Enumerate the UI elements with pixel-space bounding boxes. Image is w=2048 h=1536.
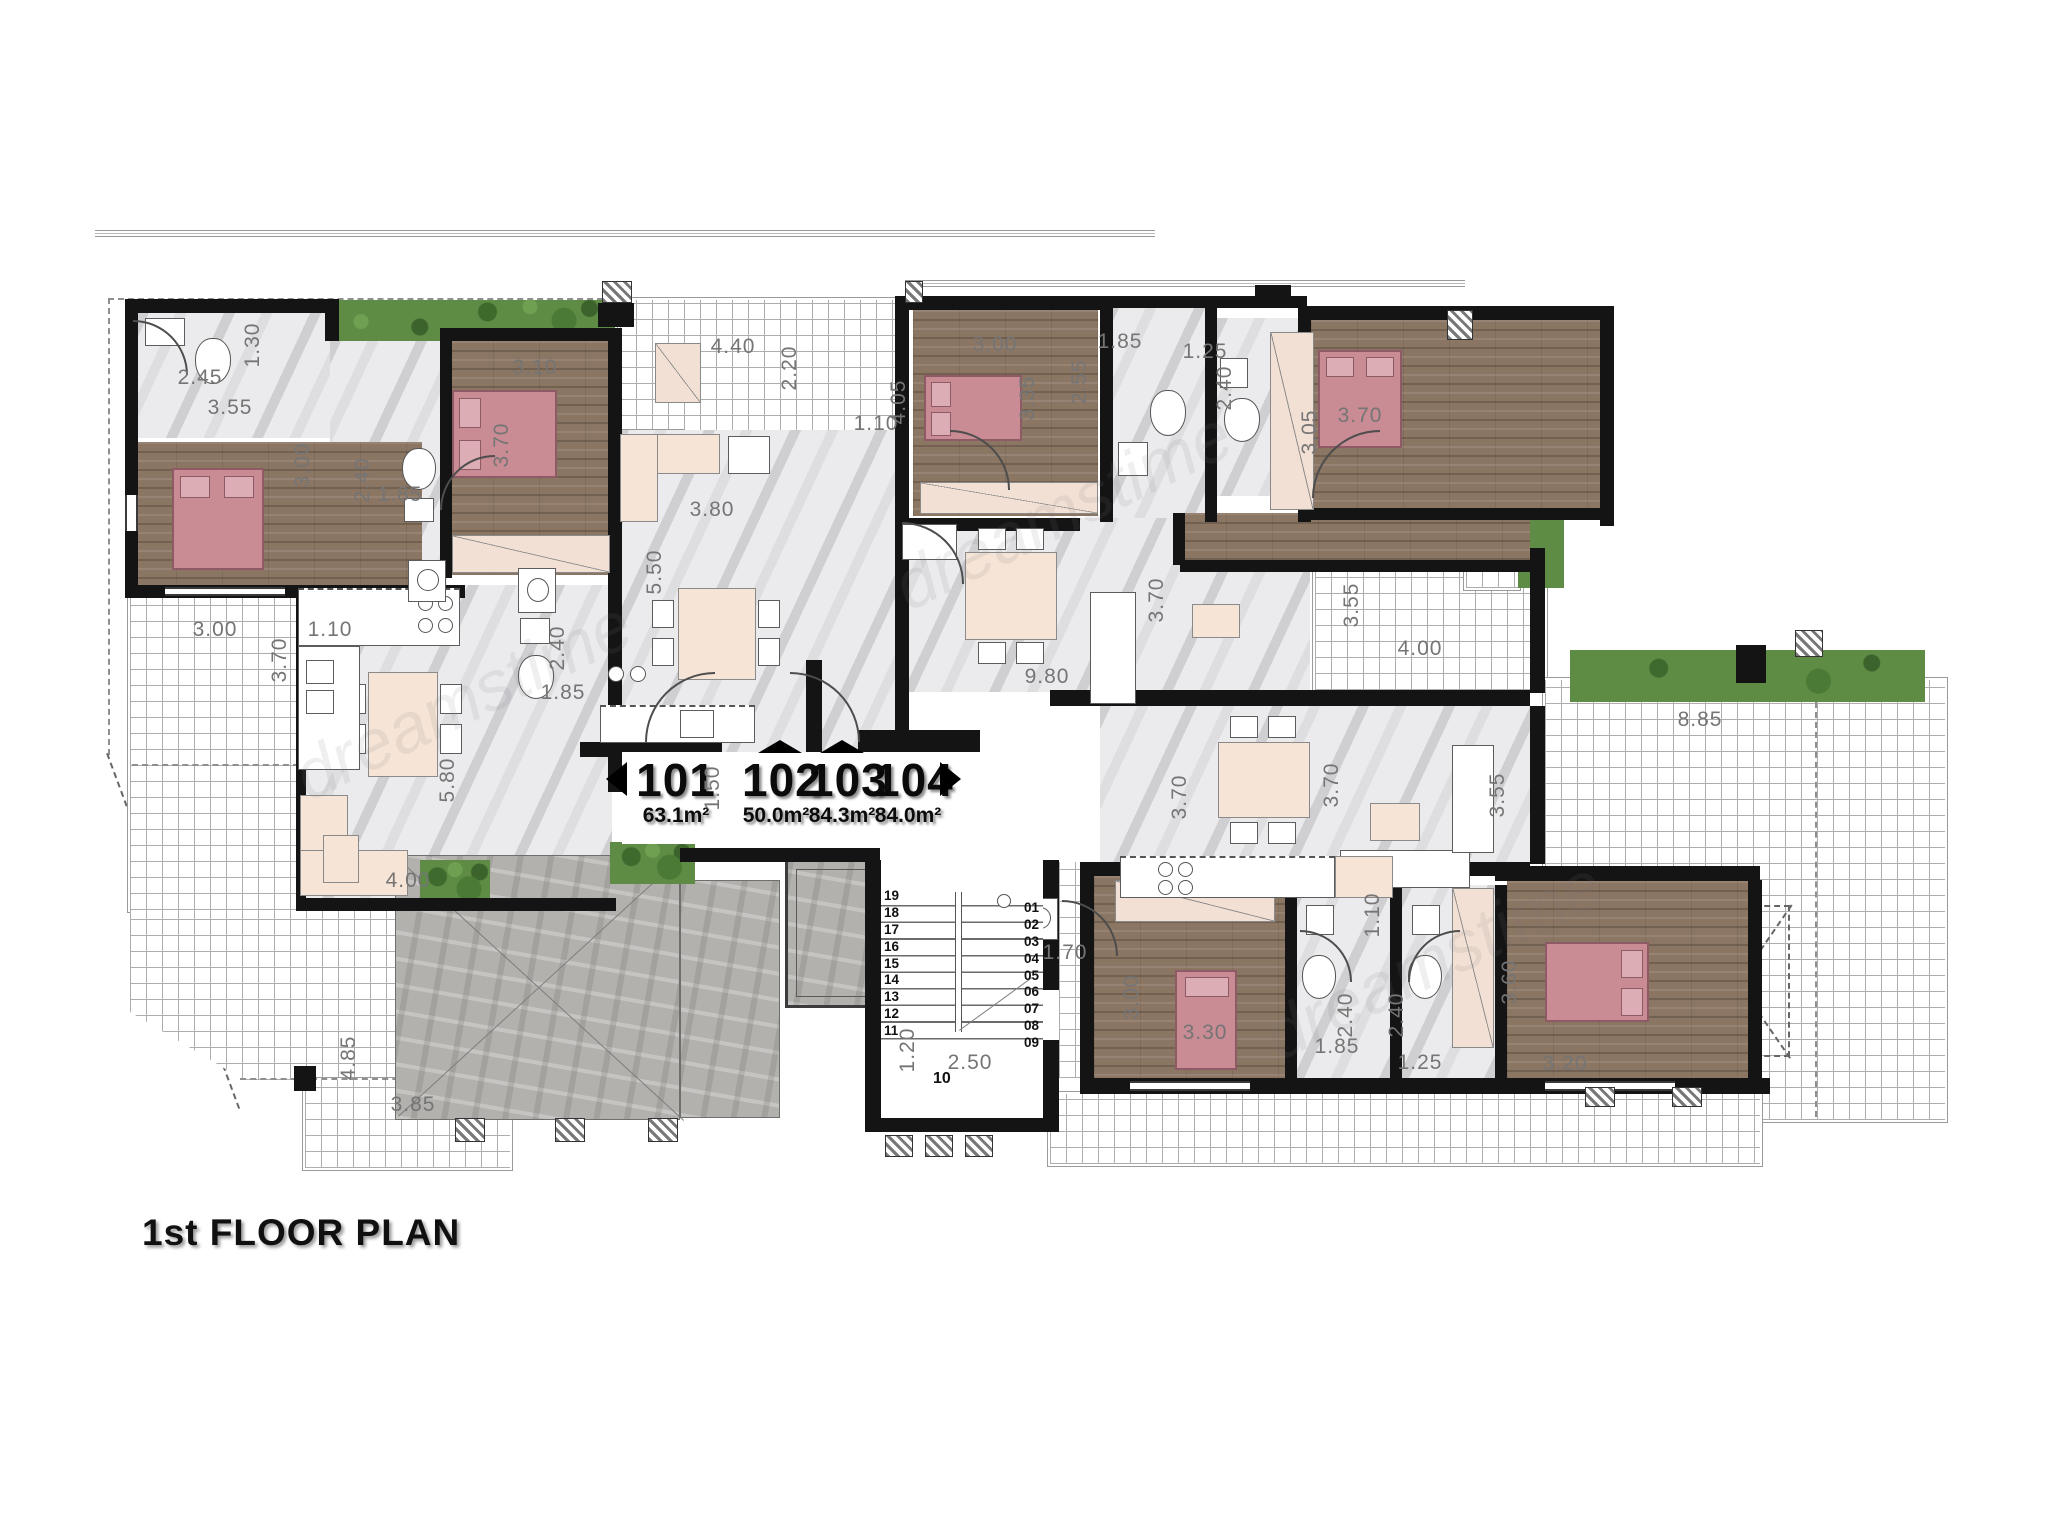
- toilet: [1150, 390, 1186, 436]
- chair: [978, 528, 1006, 550]
- wall: [1180, 560, 1538, 572]
- stair-step-number: 05: [1009, 968, 1039, 983]
- dimension-label: 3.20: [1543, 1052, 1588, 1076]
- roof-edge-lines-top: [95, 230, 1155, 237]
- dimension-label: 1.10: [1361, 893, 1385, 938]
- wall: [296, 898, 616, 911]
- dimension-label: 3.70: [1168, 775, 1192, 820]
- dimension-label: 1.20: [896, 1028, 920, 1073]
- column-hatched: [1672, 1087, 1702, 1107]
- chair: [440, 684, 462, 714]
- chair: [1016, 528, 1044, 550]
- dimension-label: 1.85: [541, 681, 586, 705]
- dimension-label: 2.50: [948, 1051, 993, 1075]
- stove-burner: [1178, 862, 1193, 877]
- wall: [1495, 866, 1760, 881]
- armchair-apt102: [728, 436, 770, 474]
- wall: [865, 1118, 1059, 1132]
- unit-label-103: 103 84.3m²: [808, 757, 876, 826]
- wall: [325, 299, 339, 341]
- chair: [1230, 716, 1258, 738]
- dimension-label: 5.80: [436, 758, 460, 803]
- stair-step-number: 02: [1009, 917, 1039, 932]
- dimension-label: 3.70: [268, 638, 292, 683]
- dining-table-apt104: [1218, 742, 1310, 818]
- wall: [598, 303, 634, 327]
- dimension-label: 1.25: [1183, 340, 1228, 364]
- column-hatched: [905, 281, 923, 303]
- wall: [1285, 885, 1297, 1078]
- sofa-apt102-corner: [620, 434, 658, 522]
- dimension-label: 3.70: [1338, 404, 1383, 428]
- entry-arrow-left-icon: [606, 762, 627, 796]
- dimension-label: 4.40: [711, 335, 756, 359]
- dimension-label: 2.45: [178, 366, 223, 390]
- dimension-label: 4.00: [1398, 637, 1443, 661]
- hallway-apt104: [1180, 513, 1530, 563]
- washing-machine: [518, 568, 556, 613]
- stair-step-number: 19: [884, 888, 912, 903]
- dimension-label: 4.85: [337, 1036, 361, 1081]
- chair: [652, 600, 674, 628]
- wall: [1748, 880, 1762, 1080]
- roof-edge-lines-top-right: [905, 280, 1465, 287]
- chair: [652, 638, 674, 666]
- dimension-label: 2.40: [1213, 366, 1237, 411]
- stair-step-number: 17: [884, 922, 912, 937]
- property-line-left: [108, 298, 110, 755]
- wall: [125, 299, 337, 313]
- entry-arrow-up-icon: [758, 740, 802, 753]
- stove-burner: [438, 618, 453, 633]
- terrace-dashed-line: [1815, 702, 1817, 1117]
- wall: [895, 296, 1107, 310]
- unit-area: 84.3m²: [808, 805, 876, 826]
- dimension-label: 4.00: [386, 869, 431, 893]
- unit-label-102: 102 50.0m²: [742, 757, 810, 826]
- column-hatched: [1447, 310, 1473, 340]
- wall: [1600, 306, 1614, 526]
- stair-step-number: 16: [884, 939, 912, 954]
- chair: [758, 600, 780, 628]
- wall: [1530, 548, 1545, 693]
- dimension-label: 3.70: [490, 423, 514, 468]
- stair-rail: [955, 892, 962, 1032]
- stair-step-number: 07: [1009, 1001, 1039, 1016]
- dimension-label: 3.00: [1120, 975, 1144, 1020]
- dimension-label: 3.30: [1183, 1021, 1228, 1045]
- coffee-table-apt104: [1370, 803, 1420, 841]
- dimension-label: 2.40: [1385, 993, 1409, 1038]
- bathroom-sink: [1412, 905, 1440, 935]
- column-hatched: [648, 1118, 678, 1142]
- stove-burner: [630, 666, 646, 682]
- dimension-label: 3.55: [1486, 773, 1510, 818]
- stair-step-number: 08: [1009, 1018, 1039, 1033]
- coffee-table-apt101: [323, 835, 359, 883]
- kitchen-sink: [306, 660, 334, 684]
- wall: [680, 848, 880, 862]
- dimension-label: 3.85: [391, 1093, 436, 1117]
- entry-arrow-up-icon: [820, 740, 864, 753]
- wall: [1043, 1040, 1059, 1120]
- dining-table-apt102: [678, 588, 756, 680]
- bed-apt104-bottom: [1545, 942, 1649, 1022]
- stair-step-number: 18: [884, 905, 912, 920]
- wall: [1736, 645, 1766, 683]
- window: [165, 587, 285, 596]
- dimension-label: 1.30: [241, 323, 265, 368]
- wall: [440, 328, 452, 578]
- entrance-walkway: [680, 880, 780, 1118]
- staircase: 191817161514131211 010203040506070809 10: [881, 862, 1043, 1118]
- wall: [1311, 508, 1601, 520]
- column-hatched: [965, 1135, 993, 1157]
- chair: [1268, 822, 1296, 844]
- chair: [1230, 822, 1258, 844]
- column-hatched: [555, 1118, 585, 1142]
- dimension-label: 5.50: [643, 550, 667, 595]
- washing-machine: [408, 560, 446, 602]
- bed-apt102: [924, 375, 1022, 441]
- dimension-label: 1.70: [1043, 941, 1088, 965]
- wall: [294, 1066, 316, 1091]
- dimension-label: 9.80: [1025, 665, 1070, 689]
- dining-table-apt101: [368, 672, 438, 777]
- dimension-label: 3.55: [1340, 583, 1364, 628]
- unit-area: 84.0m²: [874, 805, 942, 826]
- chair: [978, 642, 1006, 664]
- stair-step-number: 06: [1009, 984, 1039, 999]
- elevator-shaft: [785, 858, 877, 1008]
- wall: [865, 860, 881, 1120]
- wardrobe: [655, 343, 701, 403]
- dimension-label: 1.85: [1315, 1035, 1360, 1059]
- dimension-label: 3.00: [291, 443, 315, 488]
- coffee-table-apt103: [1192, 604, 1240, 638]
- dimension-label: 3.00: [973, 333, 1018, 357]
- floor-plan: 191817161514131211 010203040506070809 10…: [0, 0, 2048, 1536]
- wall: [1080, 862, 1094, 1094]
- window: [1130, 1081, 1250, 1091]
- bed-apt103-bottom: [1175, 970, 1237, 1070]
- bathroom-sink: [1118, 442, 1148, 476]
- chair: [1016, 642, 1044, 664]
- stair-step-number: 03: [1009, 934, 1039, 949]
- balcony-bottom-center: [1050, 1094, 1760, 1164]
- dining-table-apt103: [965, 552, 1057, 640]
- stair-step-number: 01: [1009, 900, 1039, 915]
- dimension-label: 3.55: [208, 396, 253, 420]
- dimension-label: 2.40: [1334, 993, 1358, 1038]
- unit-number: 102: [742, 757, 810, 803]
- column-hatched: [602, 281, 632, 303]
- dimension-label: 3.10: [513, 356, 558, 380]
- kitchen-counter-apt104: [1120, 856, 1335, 898]
- wall: [1530, 706, 1545, 864]
- entry-arrow-right-icon: [940, 762, 961, 796]
- chair: [758, 638, 780, 666]
- column-hatched: [455, 1118, 485, 1142]
- stove-burner: [608, 666, 624, 682]
- unit-number: 103: [808, 757, 876, 803]
- column-hatched: [925, 1135, 953, 1157]
- wall: [1173, 513, 1185, 565]
- wall: [1390, 885, 1402, 1078]
- wall: [1205, 300, 1217, 522]
- dimension-label: 2.20: [778, 346, 802, 391]
- window: [125, 495, 138, 531]
- dimension-label: 2.40: [351, 458, 375, 503]
- dimension-label: 3.60: [1498, 960, 1522, 1005]
- column-hatched: [1585, 1087, 1615, 1107]
- dimension-label: 3.70: [1145, 578, 1169, 623]
- stove-burner: [1158, 862, 1173, 877]
- dimension-label: 4.05: [887, 380, 911, 425]
- wall: [1255, 285, 1291, 307]
- stair-step-number: 13: [884, 989, 912, 1004]
- stair-step-number: 15: [884, 956, 912, 971]
- dimension-label: 8.85: [1678, 708, 1723, 732]
- stair-step-number: 14: [884, 972, 912, 987]
- stair-step-number: 09: [1009, 1035, 1039, 1050]
- dimension-label: 1.25: [1398, 1051, 1443, 1075]
- stair-step-number: 12: [884, 1006, 912, 1021]
- dimension-label: 2.55: [1068, 360, 1092, 405]
- unit-number: 104: [874, 757, 942, 803]
- stove-burner: [418, 618, 433, 633]
- stove-burner: [1158, 880, 1173, 895]
- dimension-label: 3.05: [1298, 410, 1322, 455]
- dimension-label: 3.80: [690, 498, 735, 522]
- kitchen-sink: [306, 690, 334, 714]
- dimension-label: 1.50: [701, 766, 725, 811]
- dimension-label: 3.00: [193, 618, 238, 642]
- bed-apt101-main: [172, 468, 264, 570]
- column-hatched: [1795, 630, 1823, 657]
- dimension-label: 3.70: [1320, 763, 1344, 808]
- stove-burner: [1178, 880, 1193, 895]
- sofa-apt103: [1090, 592, 1136, 704]
- chair: [1268, 716, 1296, 738]
- dimension-label: 2.40: [546, 626, 570, 671]
- unit-area: 50.0m²: [742, 805, 810, 826]
- chair: [440, 724, 462, 754]
- dimension-label: 3.35: [1016, 376, 1040, 421]
- unit-label-104: 104 84.0m²: [874, 757, 942, 826]
- dimension-label: 1.10: [308, 618, 353, 642]
- page-title: 1st FLOOR PLAN: [142, 1212, 460, 1254]
- column-hatched: [885, 1135, 913, 1157]
- dimension-label: 1.85: [1098, 330, 1143, 354]
- stair-step-number: 04: [1009, 951, 1039, 966]
- wall: [440, 328, 618, 341]
- dimension-label: 1.85: [378, 483, 423, 507]
